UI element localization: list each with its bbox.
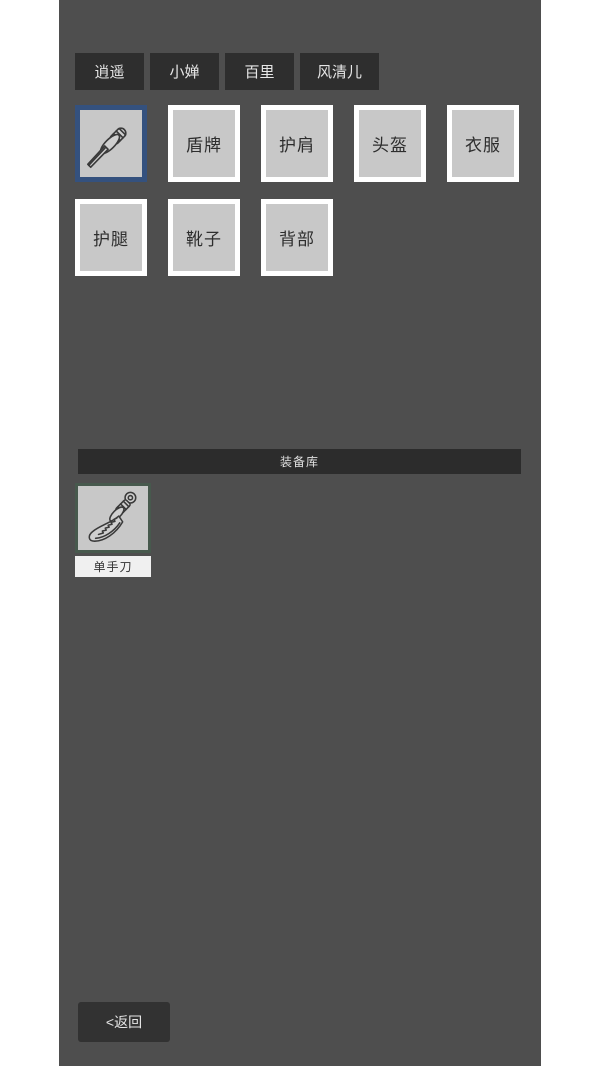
slot-clothes[interactable]: 衣服 bbox=[447, 105, 519, 182]
saber-icon bbox=[83, 489, 143, 547]
slot-legguards[interactable]: 护腿 bbox=[75, 199, 147, 276]
game-viewport: 逍遥 小婵 百里 风清儿 bbox=[59, 0, 541, 1066]
slot-shield[interactable]: 盾牌 bbox=[168, 105, 240, 182]
screen: 逍遥 小婵 百里 风清儿 bbox=[0, 0, 600, 1066]
tab-character-3[interactable]: 百里 bbox=[225, 53, 294, 90]
tab-character-1[interactable]: 逍遥 bbox=[75, 53, 144, 90]
slot-clothes-label: 衣服 bbox=[465, 131, 501, 156]
equipment-slot-row-2: 护腿 靴子 背部 bbox=[75, 199, 333, 276]
slot-shoulder[interactable]: 护肩 bbox=[261, 105, 333, 182]
inventory-header-label: 装备库 bbox=[280, 453, 319, 470]
inventory-header: 装备库 bbox=[78, 449, 521, 474]
slot-legguards-label: 护腿 bbox=[93, 225, 129, 250]
slot-helmet-label: 头盔 bbox=[372, 131, 408, 156]
inventory-item-icon-box[interactable] bbox=[75, 483, 151, 553]
equipment-slot-row-1: 盾牌 护肩 头盔 衣服 bbox=[75, 105, 519, 182]
slot-shoulder-label: 护肩 bbox=[279, 131, 315, 156]
sword-icon bbox=[82, 115, 140, 173]
back-button[interactable]: <返回 bbox=[78, 1002, 170, 1042]
inventory-item-name: 单手刀 bbox=[75, 556, 151, 577]
slot-weapon[interactable] bbox=[75, 105, 147, 182]
slot-back-label: 背部 bbox=[279, 225, 315, 250]
slot-helmet[interactable]: 头盔 bbox=[354, 105, 426, 182]
slot-boots-label: 靴子 bbox=[186, 225, 222, 250]
inventory-item[interactable]: 单手刀 bbox=[75, 483, 151, 577]
tab-character-2[interactable]: 小婵 bbox=[150, 53, 219, 90]
character-tab-bar: 逍遥 小婵 百里 风清儿 bbox=[75, 53, 379, 90]
slot-shield-label: 盾牌 bbox=[186, 131, 222, 156]
slot-back[interactable]: 背部 bbox=[261, 199, 333, 276]
tab-character-4[interactable]: 风清儿 bbox=[300, 53, 379, 90]
slot-boots[interactable]: 靴子 bbox=[168, 199, 240, 276]
